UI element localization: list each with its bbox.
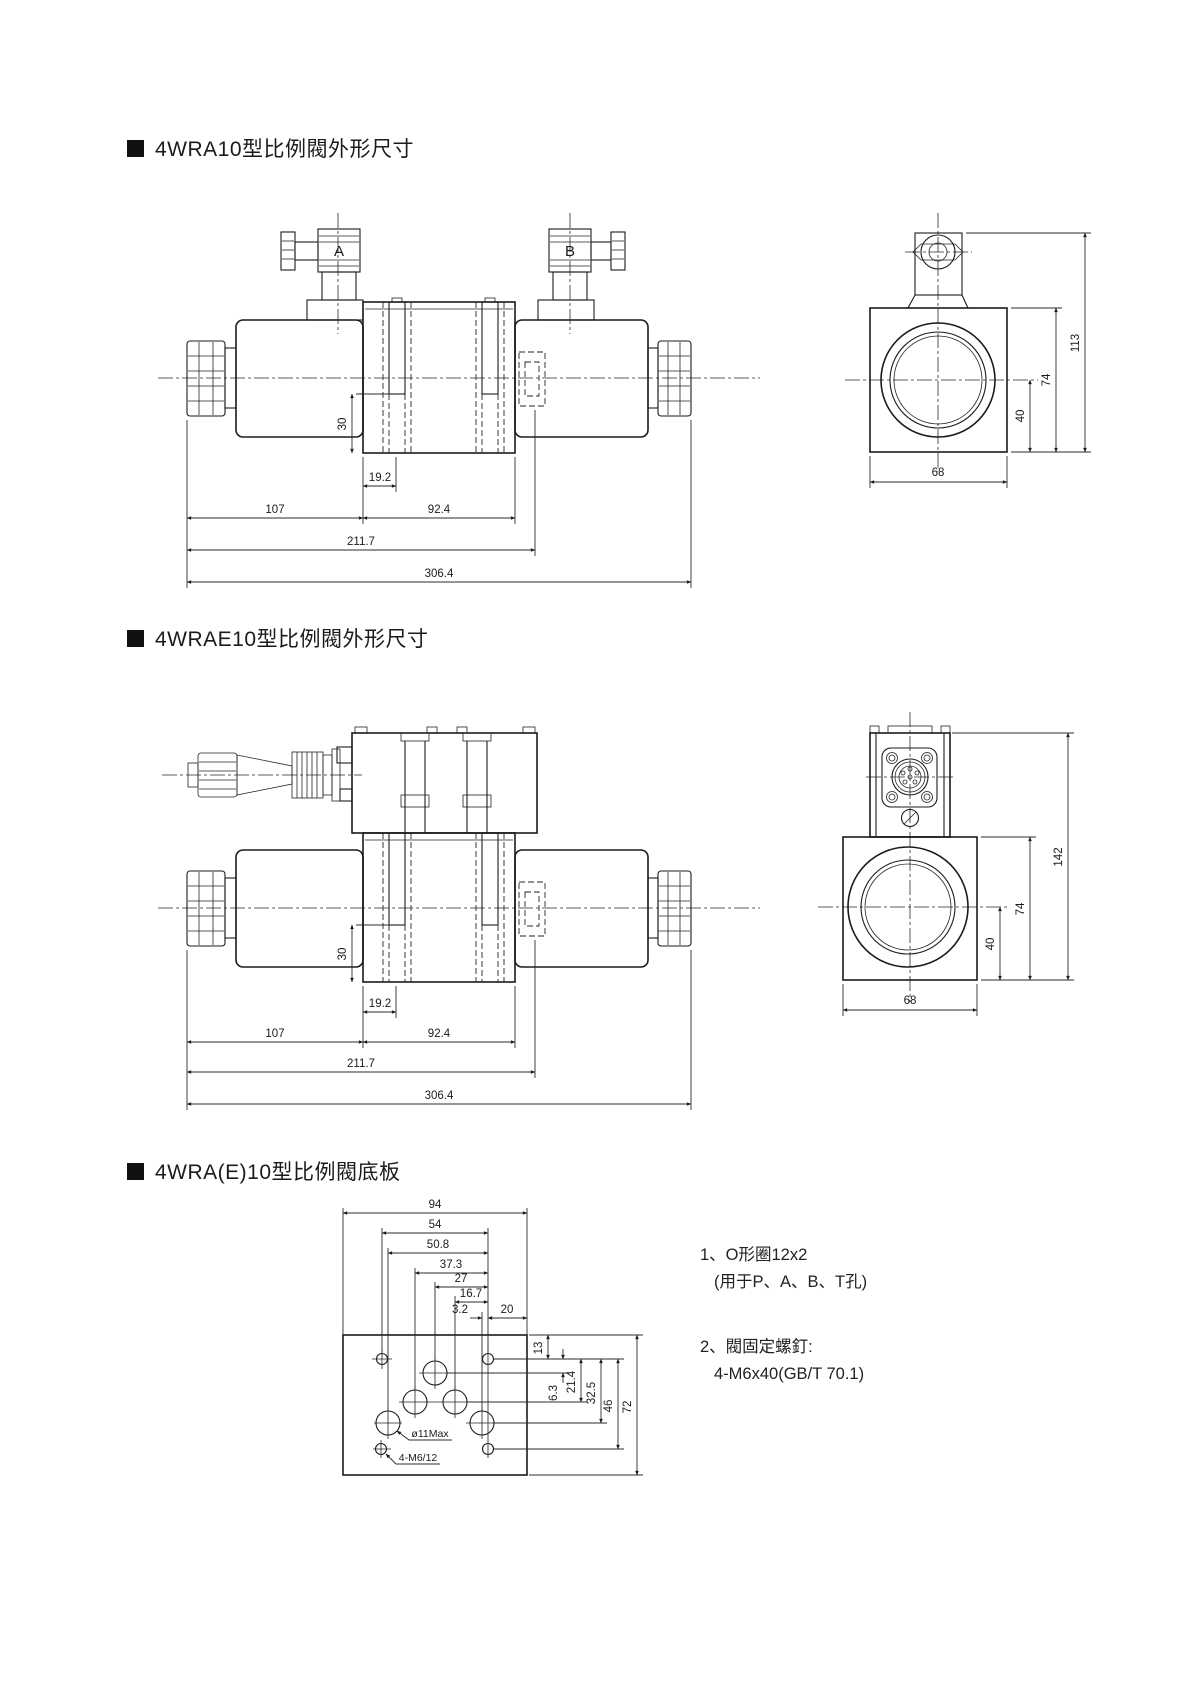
dim-68: 68 [932, 467, 945, 479]
valve2-nameplate [519, 882, 545, 936]
dim-21-4: 21.4 [566, 1370, 578, 1393]
dim-54: 54 [429, 1219, 442, 1231]
dim-92-4: 92.4 [428, 1028, 451, 1040]
subplate-right-dimensions: 13 6.3 21.4 32.5 46 72 [447, 1335, 643, 1475]
valve1-valve-body [363, 298, 515, 453]
dim-72: 72 [622, 1401, 634, 1414]
valve1-front-view: A B [158, 213, 760, 588]
dim-30: 30 [337, 418, 349, 431]
dim-92-4: 92.4 [428, 504, 451, 516]
hole-diameter-label: ø11Max [411, 1428, 449, 1440]
dim-113: 113 [1070, 334, 1082, 352]
dim-40: 40 [985, 938, 997, 951]
dim-306-4: 306.4 [425, 568, 454, 580]
valve1-right-nut [648, 341, 691, 416]
dim-68: 68 [904, 995, 917, 1007]
dim-40: 40 [1015, 410, 1027, 423]
valve1-side-view: 68 40 74 113 [845, 213, 1091, 488]
subplate-hole-labels: ø11Max 4-M6/12 [386, 1428, 452, 1464]
connector-a-label: A [334, 243, 344, 260]
dim-32-5: 32.5 [586, 1382, 598, 1404]
dim-46: 46 [603, 1400, 615, 1413]
dim-306-4: 306.4 [425, 1090, 454, 1102]
valve1-side-dimensions: 68 40 74 113 [870, 233, 1091, 488]
valve2-front-view: 30 19.2 107 92.4 211.7 306.4 [158, 727, 760, 1110]
dim-211-7: 211.7 [347, 536, 375, 548]
technical-drawing-canvas: A B [0, 0, 1200, 1699]
valve2-right-nut [648, 871, 691, 946]
dim-27: 27 [455, 1273, 468, 1285]
dim-94: 94 [429, 1199, 442, 1211]
dim-19-2: 19.2 [369, 472, 391, 484]
valve1-front-dimensions: 30 19.2 107 92.4 211.7 306.4 [187, 394, 691, 588]
dim-20: 20 [501, 1304, 514, 1316]
adjuster-knob [162, 749, 362, 801]
valve1-left-nut [187, 341, 236, 416]
valve2-left-nut [187, 871, 236, 946]
dim-37-3: 37.3 [440, 1259, 462, 1271]
connector-b-label: B [565, 243, 575, 260]
dim-107: 107 [265, 504, 284, 516]
dim-142: 142 [1053, 847, 1065, 866]
mounting-screw-label: 4-M6/12 [399, 1452, 438, 1464]
dim-3-2: 3.2 [452, 1304, 468, 1316]
valve2-front-dimensions: 30 19.2 107 92.4 211.7 306.4 [187, 925, 691, 1110]
drawing-page: 4WRA10型比例閥外形尺寸 4WRAE10型比例閥外形尺寸 4WRA(E)10… [0, 0, 1200, 1699]
dim-16-7: 16.7 [460, 1288, 482, 1300]
valve1-side-body [870, 308, 1007, 452]
valve2-valve-body [363, 833, 515, 982]
electronics-box [337, 727, 537, 833]
valve2-side-view: 68 40 74 142 [818, 712, 1074, 1016]
connector-b: B [538, 213, 625, 334]
dim-211-7: 211.7 [347, 1058, 375, 1070]
connector-a: A [281, 213, 363, 334]
subplate-view: 94 54 50.8 37.3 27 16.7 3.2 20 [343, 1199, 643, 1475]
dim-74: 74 [1041, 373, 1053, 386]
dim-19-2: 19.2 [369, 998, 391, 1010]
dim-50-8: 50.8 [427, 1239, 449, 1251]
dim-30: 30 [337, 948, 349, 961]
dim-6-3: 6.3 [548, 1385, 560, 1401]
valve1-nameplate [519, 352, 545, 406]
dim-107: 107 [265, 1028, 284, 1040]
dim-74: 74 [1015, 902, 1027, 915]
dim-13: 13 [533, 1342, 545, 1355]
